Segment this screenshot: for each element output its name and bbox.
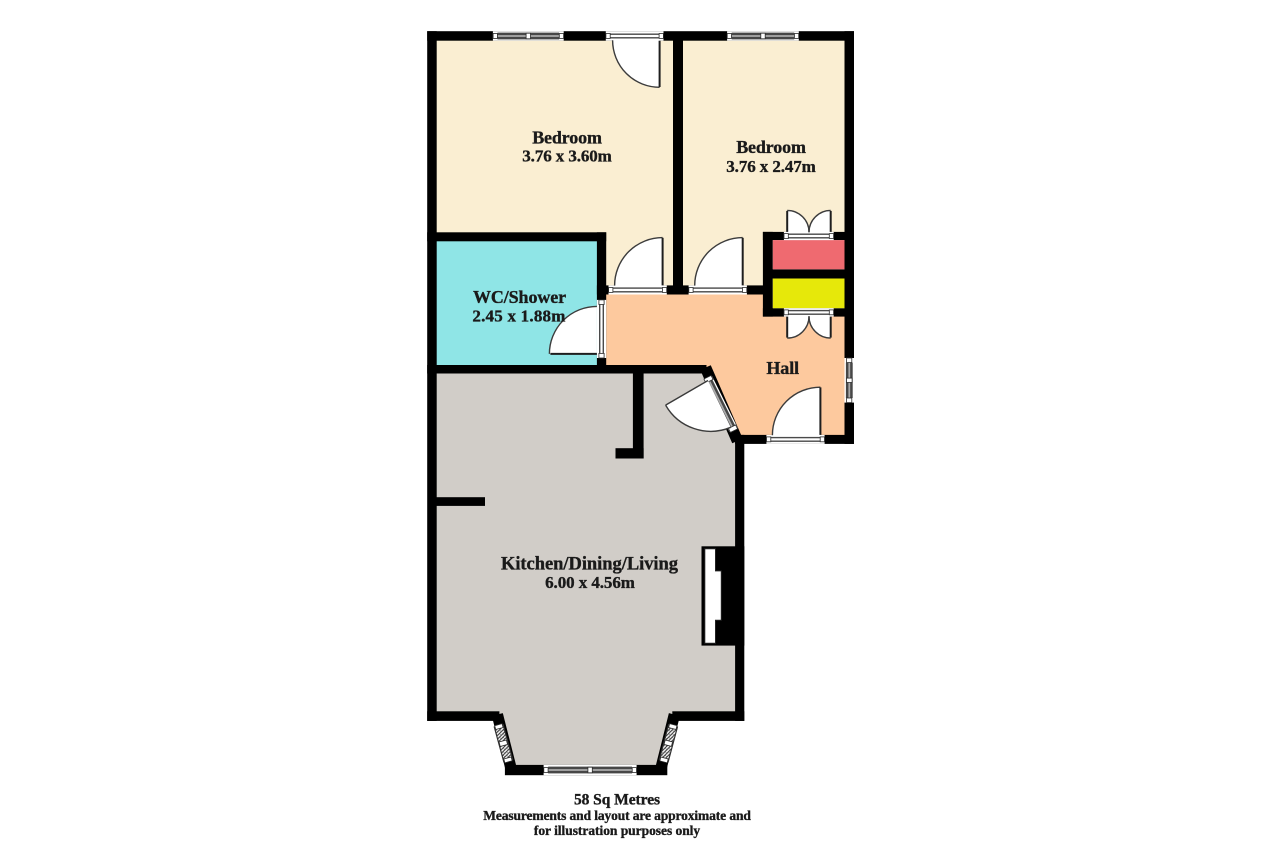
- svg-text:WC/Shower: WC/Shower: [473, 287, 566, 307]
- svg-text:6.00 x 4.56m: 6.00 x 4.56m: [545, 573, 635, 592]
- svg-text:3.76 x 2.47m: 3.76 x 2.47m: [726, 157, 815, 176]
- svg-text:58 Sq Metres: 58 Sq Metres: [574, 791, 660, 808]
- svg-text:2.45 x 1.88m: 2.45 x 1.88m: [472, 307, 565, 326]
- svg-text:for illustration purposes only: for illustration purposes only: [534, 823, 700, 838]
- svg-text:3.76 x 3.60m: 3.76 x 3.60m: [522, 147, 611, 166]
- svg-text:Measurements and layout are ap: Measurements and layout are approximate …: [483, 808, 751, 823]
- svg-text:Kitchen/Dining/Living: Kitchen/Dining/Living: [501, 554, 679, 574]
- svg-text:Bedroom: Bedroom: [532, 127, 602, 147]
- svg-text:Hall: Hall: [766, 358, 799, 378]
- svg-text:Bedroom: Bedroom: [736, 137, 806, 157]
